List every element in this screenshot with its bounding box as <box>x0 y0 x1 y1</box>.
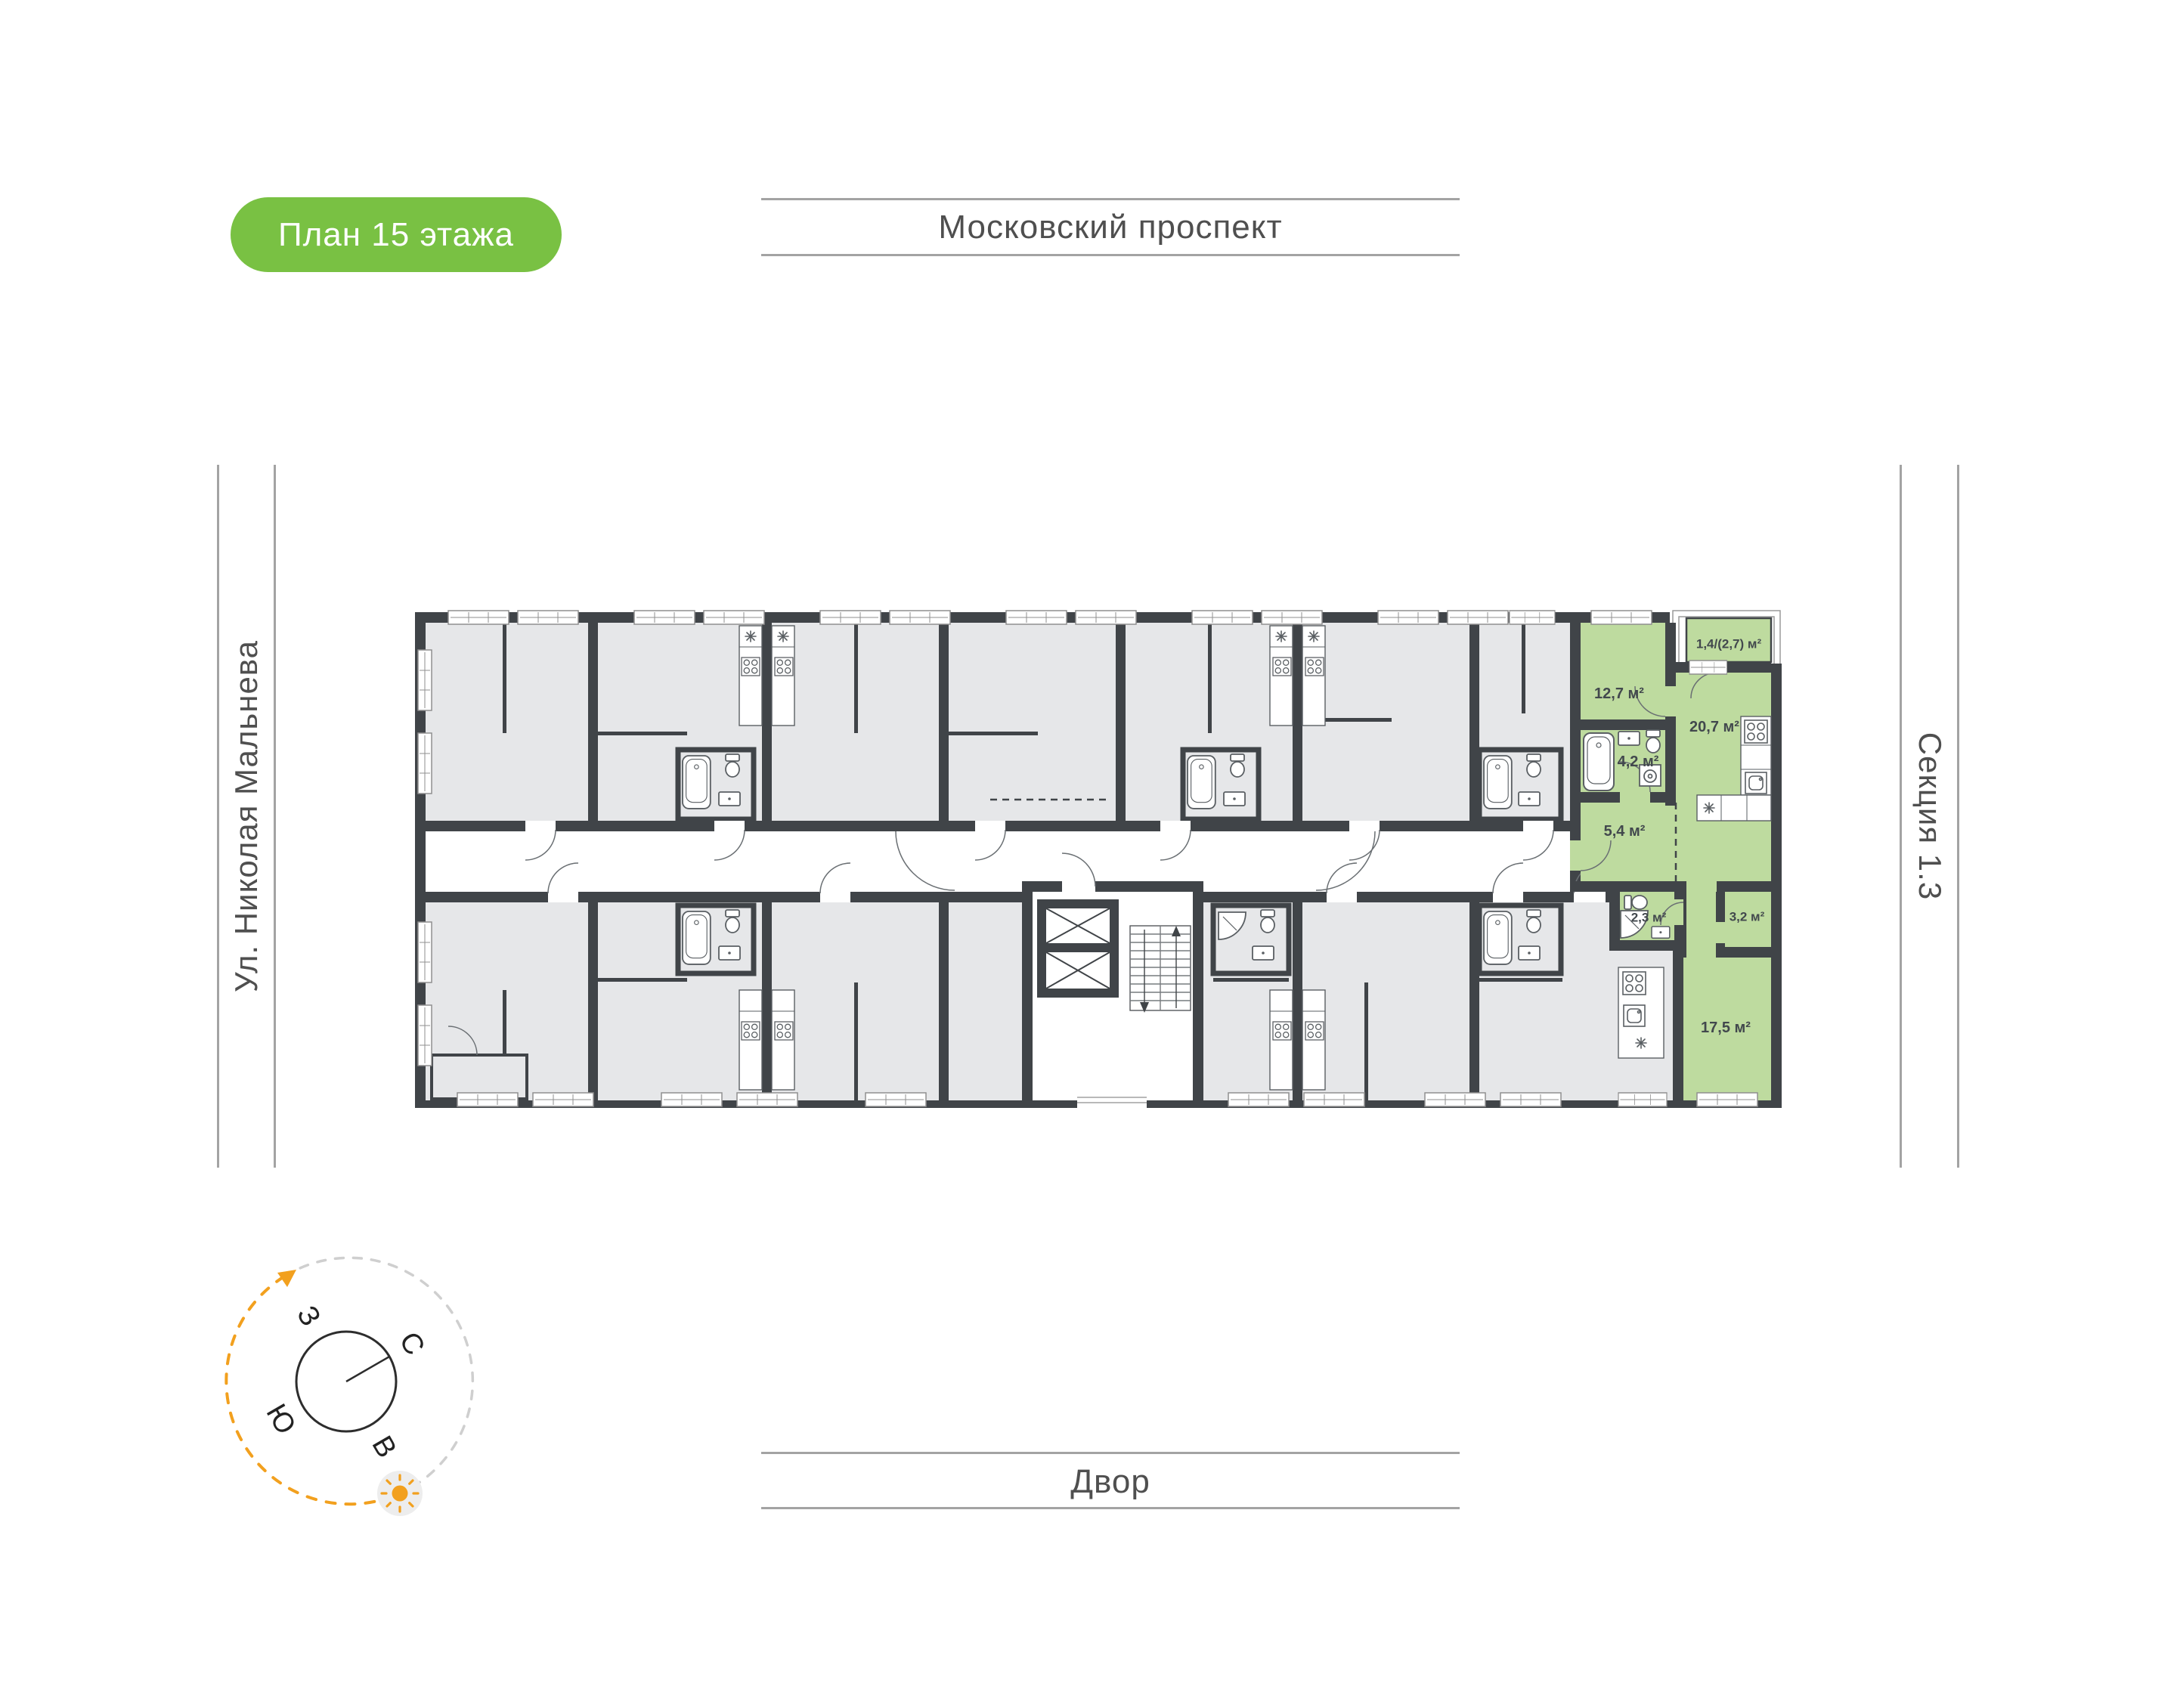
room-area-balcony: 1,4/(2,7) м² <box>1696 637 1762 651</box>
section-line-inner <box>1900 465 1902 1168</box>
window-icon <box>418 1005 432 1066</box>
window-icon <box>1618 1093 1667 1106</box>
left-street-line-outer <box>217 465 219 1168</box>
window-icon <box>1510 611 1555 624</box>
left-street-label: Ул. Николая Мальнева <box>228 640 265 992</box>
toilet-icon <box>1261 910 1274 933</box>
stove-icon <box>1305 1022 1324 1040</box>
sink-icon <box>1224 792 1245 806</box>
courtyard-line-upper <box>761 1452 1460 1454</box>
stove-icon <box>1273 1022 1291 1040</box>
kitchen-sink-icon <box>1624 1005 1645 1026</box>
window-icon <box>1262 611 1322 624</box>
sink-icon <box>1618 732 1640 745</box>
window-icon <box>418 922 432 982</box>
stove-icon <box>1305 658 1324 676</box>
window-icon <box>737 1093 797 1106</box>
window-icon <box>418 733 432 794</box>
compass-south-label: Ю <box>260 1399 302 1440</box>
sink-icon <box>719 946 740 960</box>
sink-icon <box>1519 946 1540 960</box>
top-street-line-upper <box>761 198 1460 200</box>
window-icon <box>518 611 578 624</box>
fridge-icon <box>1276 631 1287 642</box>
stove-icon <box>775 658 793 676</box>
window-icon <box>1228 1093 1289 1106</box>
window-icon <box>457 1093 518 1106</box>
fridge-icon <box>1308 631 1319 642</box>
stair-elevator-core <box>1022 853 1203 1108</box>
window-icon <box>1304 1093 1364 1106</box>
compass-north-label: С <box>393 1327 431 1361</box>
elevator-shaft-2 <box>1046 952 1110 989</box>
window-icon <box>704 611 764 624</box>
window-icon <box>1689 661 1727 674</box>
section-label: Секция 1.3 <box>1912 732 1948 900</box>
room-area-kitchen-living: 20,7 м² <box>1689 719 1739 735</box>
window-icon <box>634 611 695 624</box>
bathtub-icon <box>1484 911 1512 964</box>
compass-east-label: В <box>365 1431 402 1463</box>
stove-icon <box>1745 720 1767 743</box>
sink-icon <box>1652 927 1670 938</box>
fridge-icon <box>778 631 788 642</box>
room-area-wc: 2,3 м² <box>1631 911 1667 925</box>
room-area-living: 17,5 м² <box>1701 1020 1751 1036</box>
window-icon <box>1697 1093 1757 1106</box>
toilet-icon <box>726 910 739 933</box>
bathtub-icon <box>1484 756 1512 809</box>
toilet-icon <box>1624 896 1647 909</box>
stove-icon <box>1273 658 1291 676</box>
compass: С В Ю З <box>187 1209 513 1542</box>
toilet-icon <box>1646 730 1660 753</box>
room-area-bathroom: 4,2 м² <box>1618 753 1659 770</box>
bathtub-icon <box>683 911 711 964</box>
sink-icon <box>1519 792 1540 806</box>
window-icon <box>1006 611 1067 624</box>
window-icon <box>661 1093 722 1106</box>
floor-badge: План 15 этажа <box>231 197 562 272</box>
fridge-icon <box>1636 1038 1646 1048</box>
floor-plan-page: План 15 этажа Московский проспект Ул. Ни… <box>0 0 2177 1708</box>
bathtub-icon <box>683 756 711 809</box>
bathtub-icon <box>1188 756 1215 809</box>
floor-plan: 1,4/(2,7) м² 12,7 м² 20,7 м² 4,2 м² 5,4 … <box>412 605 1795 1112</box>
window-icon <box>448 611 509 624</box>
stove-icon <box>742 1022 760 1040</box>
left-street-line-inner <box>274 465 276 1168</box>
toilet-icon <box>1527 754 1541 777</box>
sink-icon <box>1253 946 1274 960</box>
compass-west-label: З <box>290 1301 327 1332</box>
room-area-bedroom: 12,7 м² <box>1594 685 1644 702</box>
toilet-icon <box>726 754 739 777</box>
sun-icon <box>377 1471 423 1516</box>
fridge-icon <box>1704 803 1714 813</box>
window-icon <box>418 650 432 710</box>
stove-icon <box>1623 972 1646 995</box>
fridge-icon <box>745 631 756 642</box>
window-icon <box>1448 611 1508 624</box>
room-area-hallway: 5,4 м² <box>1604 823 1646 840</box>
window-icon <box>820 611 881 624</box>
window-icon <box>1378 611 1438 624</box>
courtyard-line-lower <box>761 1507 1460 1509</box>
window-icon <box>1425 1093 1485 1106</box>
window-icon <box>1591 611 1652 624</box>
courtyard-label: Двор <box>761 1463 1460 1501</box>
stove-icon <box>775 1022 793 1040</box>
window-icon <box>1076 611 1136 624</box>
window-icon <box>1500 1093 1561 1106</box>
corridor <box>426 831 1570 892</box>
top-street-line-lower <box>761 254 1460 256</box>
floor-badge-label: План 15 этажа <box>278 216 514 254</box>
window-icon <box>866 1093 926 1106</box>
section-line-outer <box>1957 465 1959 1168</box>
window-icon <box>533 1093 593 1106</box>
elevator-shaft-1 <box>1046 908 1110 943</box>
kitchen-sink-icon <box>1745 772 1767 794</box>
window-icon <box>890 611 950 624</box>
top-street-label: Московский проспект <box>761 209 1460 246</box>
stove-icon <box>742 658 760 676</box>
toilet-icon <box>1527 910 1541 933</box>
room-area-storage: 3,2 м² <box>1730 910 1765 924</box>
bathtub-icon <box>1584 733 1614 791</box>
window-icon <box>1192 611 1253 624</box>
toilet-icon <box>1231 754 1244 777</box>
sink-icon <box>719 792 740 806</box>
